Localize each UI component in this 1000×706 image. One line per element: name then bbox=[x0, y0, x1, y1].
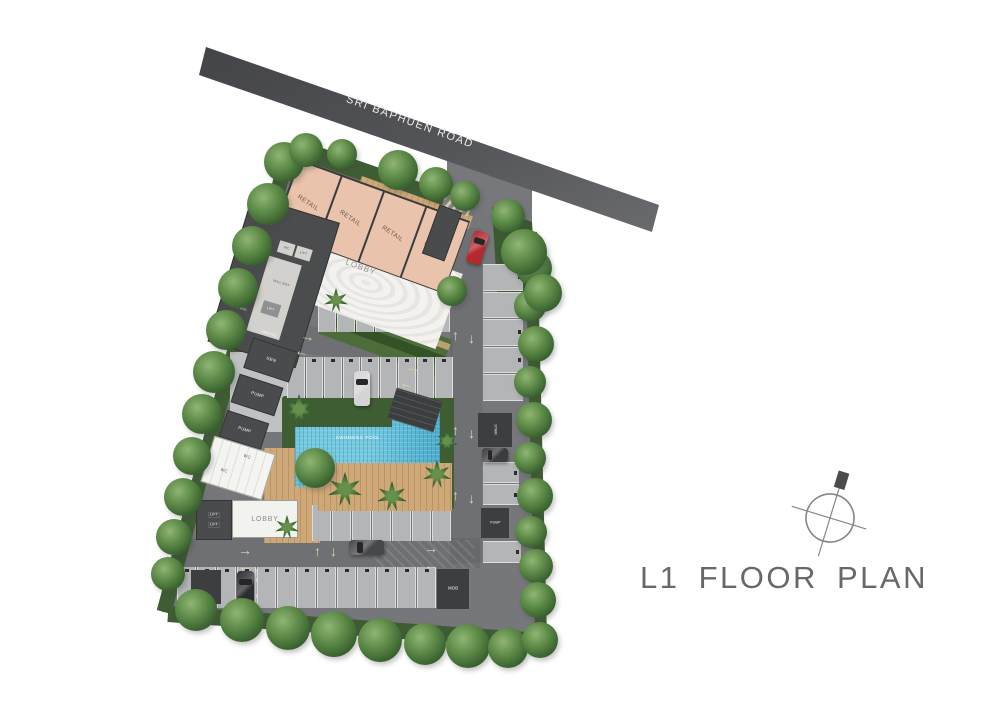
wheel-stop bbox=[305, 569, 309, 572]
traffic-arrow-icon: ↓ bbox=[468, 426, 475, 440]
traffic-arrow-icon: ↓ bbox=[468, 491, 475, 505]
tree-icon bbox=[295, 448, 335, 488]
traffic-arrow-icon: ↑ bbox=[452, 423, 459, 437]
tree-icon bbox=[173, 437, 211, 475]
wheel-stop bbox=[312, 359, 316, 362]
wheel-stop bbox=[185, 569, 189, 572]
tree-icon bbox=[175, 589, 217, 631]
traffic-arrow-icon: → bbox=[300, 328, 317, 345]
traffic-arrow-icon: ↑ bbox=[452, 488, 459, 502]
traffic-arrow-icon: ← bbox=[399, 375, 415, 391]
wheel-stop bbox=[225, 569, 229, 572]
tree-icon bbox=[156, 519, 192, 555]
car-windshield bbox=[488, 450, 493, 460]
wheel-stop bbox=[345, 569, 349, 572]
wheel-stop bbox=[385, 569, 389, 572]
lift-cell: LIFT bbox=[294, 245, 313, 261]
wheel-stop bbox=[349, 359, 353, 362]
pump-right: PUMP bbox=[481, 508, 509, 538]
tree-icon bbox=[247, 183, 289, 225]
mdb-parking-room: MDB bbox=[437, 569, 469, 609]
tree-icon bbox=[491, 199, 525, 233]
parking-stall bbox=[257, 567, 276, 608]
parked-car bbox=[349, 540, 384, 555]
tree-icon bbox=[289, 133, 323, 167]
wheel-stop bbox=[331, 359, 335, 362]
tree-icon bbox=[232, 226, 272, 266]
tree-icon bbox=[378, 150, 418, 190]
tree-icon bbox=[419, 167, 453, 201]
car-windshield bbox=[357, 542, 363, 553]
parking-stall bbox=[483, 484, 519, 505]
tree-icon bbox=[501, 229, 547, 275]
wc-cell: WC bbox=[277, 240, 296, 256]
traffic-arrow-icon: → bbox=[405, 359, 421, 375]
wheel-stop bbox=[516, 550, 519, 554]
parking-stall bbox=[337, 567, 356, 608]
parking-stall bbox=[417, 567, 436, 608]
parking-stall bbox=[297, 567, 316, 608]
tree-icon bbox=[516, 402, 552, 438]
traffic-arrow-icon: ← bbox=[424, 558, 438, 572]
traffic-arrow-icon: ↓ bbox=[330, 544, 337, 558]
lift-block: LIFT LIFT bbox=[196, 500, 232, 540]
wheel-stop bbox=[285, 569, 289, 572]
stair-right: STAIR bbox=[478, 413, 512, 447]
tree-icon bbox=[220, 598, 264, 642]
pool-label: SWIMMING POOL bbox=[335, 435, 379, 440]
tree-icon bbox=[358, 618, 402, 662]
tree-icon bbox=[193, 351, 235, 393]
tree-icon bbox=[164, 478, 202, 516]
tree-icon bbox=[206, 310, 246, 350]
wheel-stop bbox=[365, 569, 369, 572]
tree-icon bbox=[518, 326, 554, 362]
parking-stall bbox=[277, 567, 296, 608]
tree-icon bbox=[517, 478, 553, 514]
tree-icon bbox=[446, 624, 490, 668]
wheel-stop bbox=[518, 358, 521, 362]
parking-stall bbox=[317, 567, 336, 608]
tree-icon bbox=[311, 611, 357, 657]
parked-car bbox=[482, 448, 508, 462]
tree-icon bbox=[515, 516, 547, 548]
car-windshield bbox=[473, 237, 485, 246]
parking-stall bbox=[435, 357, 453, 398]
parking-stall bbox=[483, 319, 523, 346]
wheel-stop bbox=[442, 359, 446, 362]
parking-stall bbox=[324, 357, 342, 398]
car-windshield bbox=[239, 579, 252, 585]
parking-stall bbox=[357, 567, 376, 608]
tree-icon bbox=[520, 582, 556, 618]
parked-car bbox=[354, 371, 370, 406]
compass-icon bbox=[775, 460, 885, 570]
parking-stall bbox=[377, 567, 396, 608]
parking-stall bbox=[306, 357, 324, 398]
tree-icon bbox=[514, 442, 546, 474]
wheel-stop bbox=[325, 569, 329, 572]
tree-icon bbox=[266, 606, 310, 650]
parking-stall bbox=[483, 462, 519, 483]
parking-stall bbox=[397, 567, 416, 608]
traffic-arrow-icon: → bbox=[424, 541, 438, 555]
tree-icon bbox=[404, 623, 446, 665]
tree-icon bbox=[514, 366, 546, 398]
tree-icon bbox=[522, 622, 558, 658]
tree-icon bbox=[151, 557, 185, 591]
traffic-arrow-icon: → bbox=[238, 543, 252, 557]
wheel-stop bbox=[368, 359, 372, 362]
car-windshield bbox=[356, 379, 368, 385]
page-title: L1 FLOOR PLAN bbox=[640, 560, 928, 596]
floor-plan-rendering: SRI BAPHUEN ROAD RETAIL RETAIL RETAIL RE… bbox=[0, 0, 1000, 706]
tree-icon bbox=[450, 181, 480, 211]
wheel-stop bbox=[386, 359, 390, 362]
tree-icon bbox=[218, 268, 258, 308]
tree-icon bbox=[327, 139, 357, 169]
traffic-arrow-icon: ← bbox=[294, 343, 311, 360]
wheel-stop bbox=[265, 569, 269, 572]
wheel-stop bbox=[514, 471, 517, 475]
wheel-stop bbox=[423, 359, 427, 362]
parking-stall bbox=[483, 347, 523, 374]
tree-icon bbox=[519, 549, 553, 583]
tree-icon bbox=[182, 394, 222, 434]
wheel-stop bbox=[405, 569, 409, 572]
traffic-arrow-icon: ← bbox=[238, 559, 252, 573]
traffic-arrow-icon: ↓ bbox=[468, 331, 475, 345]
traffic-arrow-icon: ↑ bbox=[314, 544, 321, 558]
parking-stall bbox=[483, 541, 521, 563]
tree-icon bbox=[437, 276, 467, 306]
tree-icon bbox=[524, 274, 562, 312]
traffic-arrow-icon: ↑ bbox=[452, 328, 459, 342]
